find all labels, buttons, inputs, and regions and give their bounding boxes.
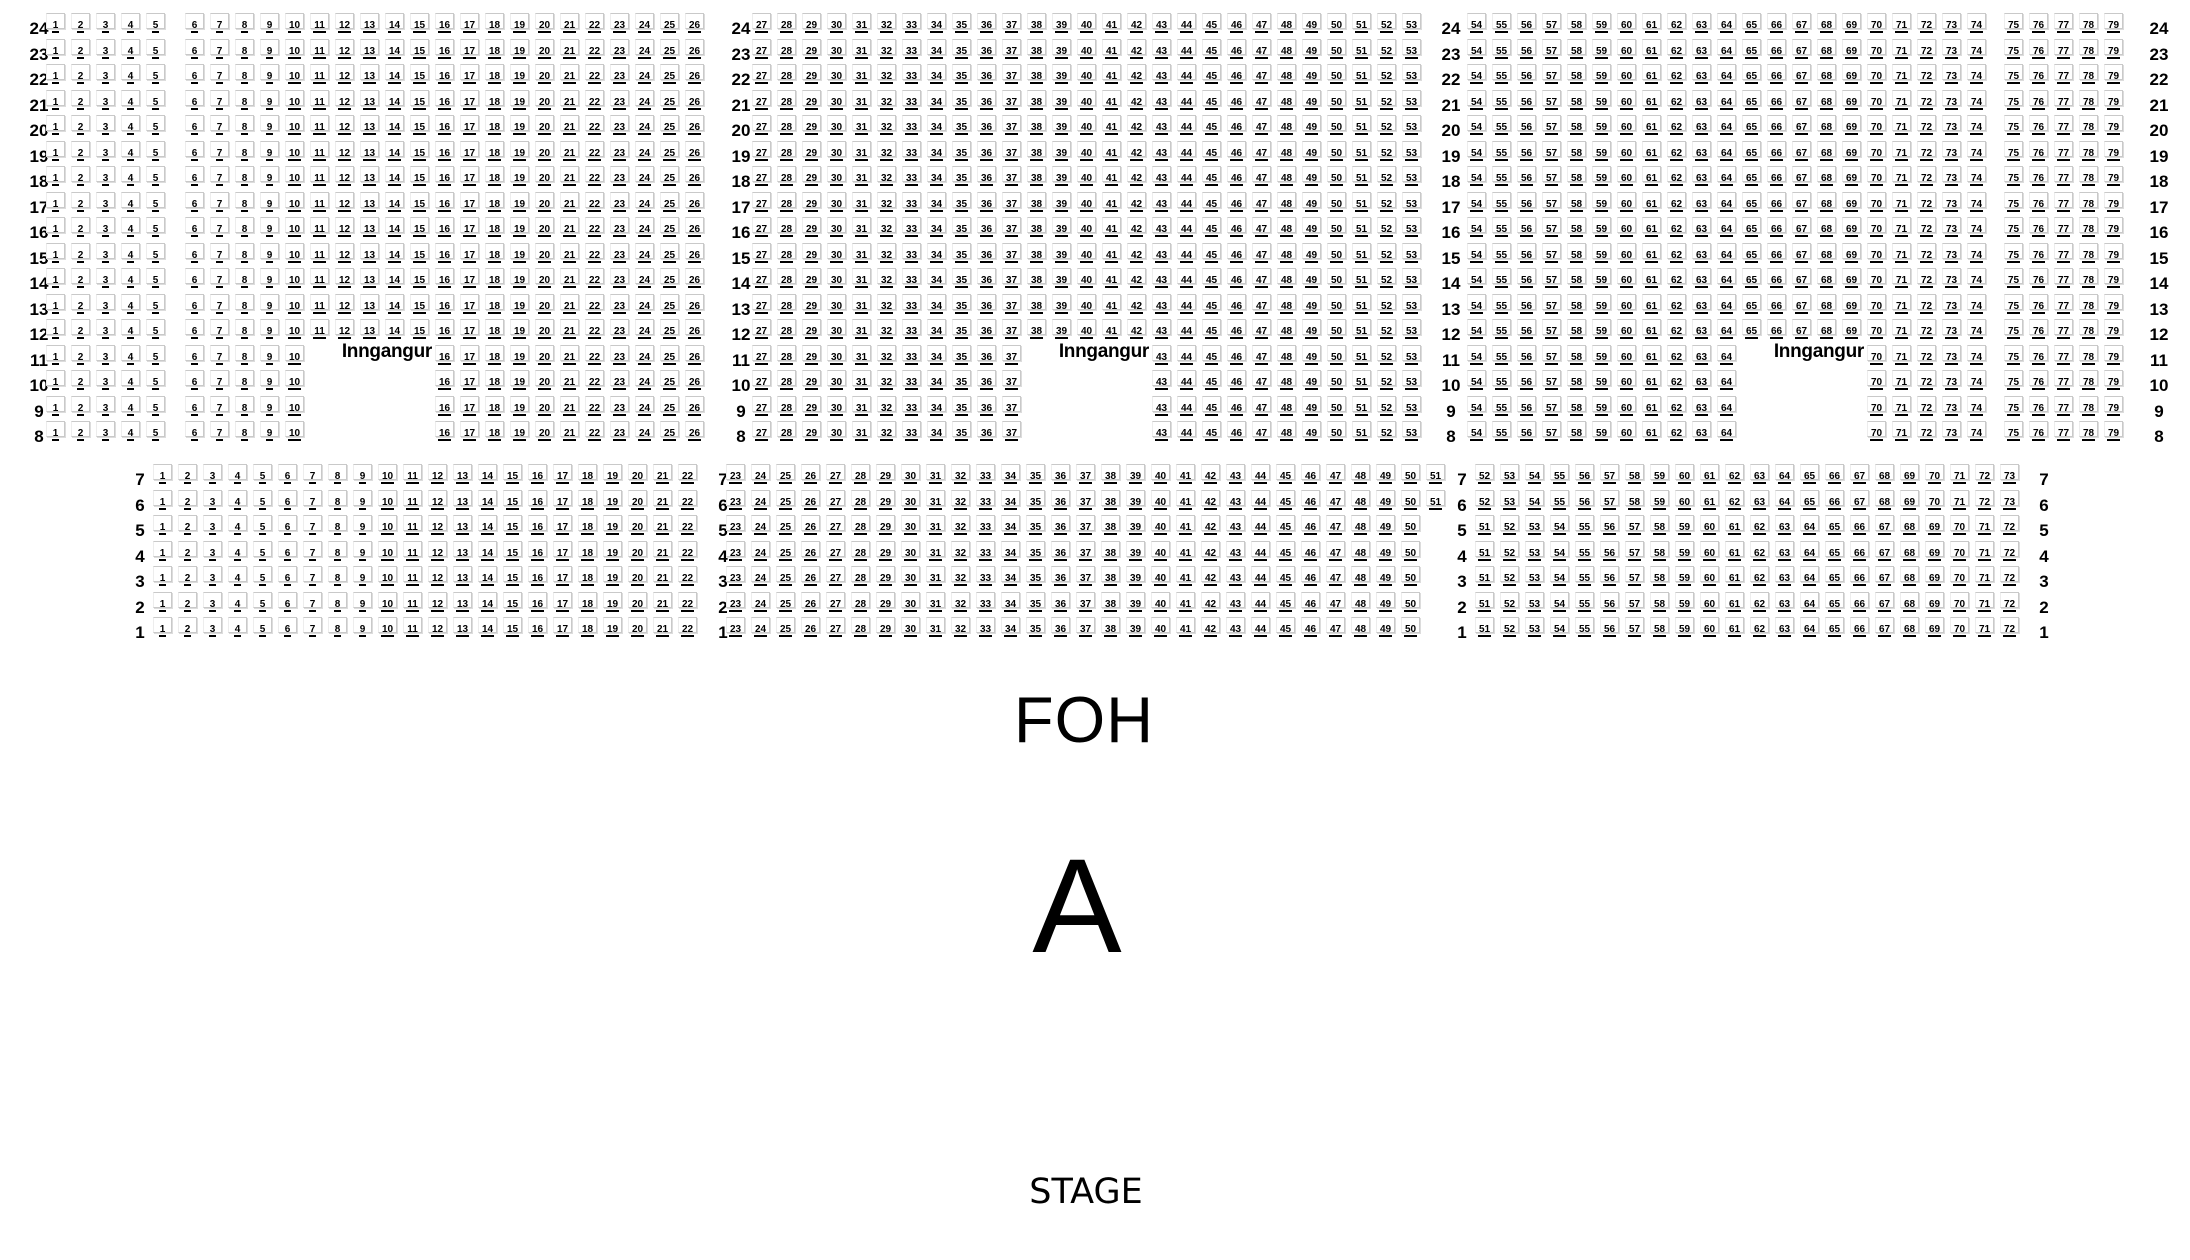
seat-r19-s74[interactable]: 74 [1967,141,1986,157]
seat-r15-s3[interactable]: 3 [96,243,115,259]
seat-r8-s25[interactable]: 25 [660,421,679,437]
seat-r24-s15[interactable]: 15 [410,13,429,29]
seat-r19-s56[interactable]: 56 [1517,141,1536,157]
seat-r24-s47[interactable]: 47 [1252,13,1271,29]
seat-r6-s45[interactable]: 45 [1276,490,1295,506]
seat-r6-s44[interactable]: 44 [1251,490,1270,506]
seat-r24-s20[interactable]: 20 [535,13,554,29]
seat-r4-s69[interactable]: 69 [1925,541,1944,557]
seat-r13-s55[interactable]: 55 [1492,294,1511,310]
seat-r8-s32[interactable]: 32 [877,421,896,437]
seat-r14-s57[interactable]: 57 [1542,268,1561,284]
seat-r24-s32[interactable]: 32 [877,13,896,29]
seat-r16-s4[interactable]: 4 [121,217,140,233]
seat-r2-s54[interactable]: 54 [1550,592,1569,608]
seat-r22-s53[interactable]: 53 [1402,64,1421,80]
seat-r9-s63[interactable]: 63 [1692,396,1711,412]
seat-r13-s70[interactable]: 70 [1867,294,1886,310]
seat-r23-s20[interactable]: 20 [535,39,554,55]
seat-r19-s52[interactable]: 52 [1377,141,1396,157]
seat-r21-s17[interactable]: 17 [460,90,479,106]
seat-r12-s9[interactable]: 9 [260,319,279,335]
seat-r20-s63[interactable]: 63 [1692,115,1711,131]
seat-r15-s45[interactable]: 45 [1202,243,1221,259]
seat-r17-s5[interactable]: 5 [146,192,165,208]
seat-r19-s70[interactable]: 70 [1867,141,1886,157]
seat-r3-s64[interactable]: 64 [1800,566,1819,582]
seat-r18-s66[interactable]: 66 [1767,166,1786,182]
seat-r19-s6[interactable]: 6 [185,141,204,157]
seat-r23-s19[interactable]: 19 [510,39,529,55]
seat-r2-s48[interactable]: 48 [1351,592,1370,608]
seat-r12-s56[interactable]: 56 [1517,319,1536,335]
seat-r1-s38[interactable]: 38 [1101,617,1120,633]
seat-r6-s7[interactable]: 7 [303,490,322,506]
seat-r24-s50[interactable]: 50 [1327,13,1346,29]
seat-r4-s40[interactable]: 40 [1151,541,1170,557]
seat-r24-s54[interactable]: 54 [1467,13,1486,29]
seat-r9-s48[interactable]: 48 [1277,396,1296,412]
seat-r2-s28[interactable]: 28 [851,592,870,608]
seat-r5-s64[interactable]: 64 [1800,515,1819,531]
seat-r24-s45[interactable]: 45 [1202,13,1221,29]
seat-r8-s10[interactable]: 10 [285,421,304,437]
seat-r3-s51[interactable]: 51 [1475,566,1494,582]
seat-r21-s6[interactable]: 6 [185,90,204,106]
seat-r14-s60[interactable]: 60 [1617,268,1636,284]
seat-r4-s27[interactable]: 27 [826,541,845,557]
seat-r8-s21[interactable]: 21 [560,421,579,437]
seat-r21-s49[interactable]: 49 [1302,90,1321,106]
seat-r5-s2[interactable]: 2 [178,515,197,531]
seat-r13-s56[interactable]: 56 [1517,294,1536,310]
seat-r22-s35[interactable]: 35 [952,64,971,80]
seat-r17-s44[interactable]: 44 [1177,192,1196,208]
seat-r8-s50[interactable]: 50 [1327,421,1346,437]
seat-r3-s36[interactable]: 36 [1051,566,1070,582]
seat-r15-s10[interactable]: 10 [285,243,304,259]
seat-r6-s71[interactable]: 71 [1950,490,1969,506]
seat-r5-s11[interactable]: 11 [403,515,422,531]
seat-r5-s28[interactable]: 28 [851,515,870,531]
seat-r24-s57[interactable]: 57 [1542,13,1561,29]
seat-r23-s2[interactable]: 2 [71,39,90,55]
seat-r18-s41[interactable]: 41 [1102,166,1121,182]
seat-r12-s4[interactable]: 4 [121,319,140,335]
seat-r20-s6[interactable]: 6 [185,115,204,131]
seat-r1-s7[interactable]: 7 [303,617,322,633]
seat-r5-s53[interactable]: 53 [1525,515,1544,531]
seat-r4-s36[interactable]: 36 [1051,541,1070,557]
seat-r18-s4[interactable]: 4 [121,166,140,182]
seat-r5-s37[interactable]: 37 [1076,515,1095,531]
seat-r19-s5[interactable]: 5 [146,141,165,157]
seat-r5-s18[interactable]: 18 [578,515,597,531]
seat-r7-s49[interactable]: 49 [1376,464,1395,480]
seat-r16-s15[interactable]: 15 [410,217,429,233]
seat-r21-s30[interactable]: 30 [827,90,846,106]
seat-r12-s23[interactable]: 23 [610,319,629,335]
seat-r16-s39[interactable]: 39 [1052,217,1071,233]
seat-r7-s14[interactable]: 14 [478,464,497,480]
seat-r18-s43[interactable]: 43 [1152,166,1171,182]
seat-r7-s57[interactable]: 57 [1600,464,1619,480]
seat-r6-s28[interactable]: 28 [851,490,870,506]
seat-r1-s67[interactable]: 67 [1875,617,1894,633]
seat-r5-s45[interactable]: 45 [1276,515,1295,531]
seat-r18-s53[interactable]: 53 [1402,166,1421,182]
seat-r16-s17[interactable]: 17 [460,217,479,233]
seat-r3-s17[interactable]: 17 [553,566,572,582]
seat-r2-s56[interactable]: 56 [1600,592,1619,608]
seat-r23-s25[interactable]: 25 [660,39,679,55]
seat-r14-s20[interactable]: 20 [535,268,554,284]
seat-r8-s2[interactable]: 2 [71,421,90,437]
seat-r11-s28[interactable]: 28 [777,345,796,361]
seat-r8-s75[interactable]: 75 [2004,421,2023,437]
seat-r13-s32[interactable]: 32 [877,294,896,310]
seat-r2-s66[interactable]: 66 [1850,592,1869,608]
seat-r20-s57[interactable]: 57 [1542,115,1561,131]
seat-r19-s64[interactable]: 64 [1717,141,1736,157]
seat-r7-s29[interactable]: 29 [876,464,895,480]
seat-r6-s48[interactable]: 48 [1351,490,1370,506]
seat-r6-s69[interactable]: 69 [1900,490,1919,506]
seat-r4-s10[interactable]: 10 [378,541,397,557]
seat-r14-s4[interactable]: 4 [121,268,140,284]
seat-r16-s62[interactable]: 62 [1667,217,1686,233]
seat-r1-s40[interactable]: 40 [1151,617,1170,633]
seat-r6-s23[interactable]: 23 [726,490,745,506]
seat-r11-s24[interactable]: 24 [635,345,654,361]
seat-r18-s28[interactable]: 28 [777,166,796,182]
seat-r16-s8[interactable]: 8 [235,217,254,233]
seat-r20-s41[interactable]: 41 [1102,115,1121,131]
seat-r5-s23[interactable]: 23 [726,515,745,531]
seat-r13-s8[interactable]: 8 [235,294,254,310]
seat-r13-s62[interactable]: 62 [1667,294,1686,310]
seat-r1-s60[interactable]: 60 [1700,617,1719,633]
seat-r16-s37[interactable]: 37 [1002,217,1021,233]
seat-r20-s24[interactable]: 24 [635,115,654,131]
seat-r15-s12[interactable]: 12 [335,243,354,259]
seat-r11-s62[interactable]: 62 [1667,345,1686,361]
seat-r17-s23[interactable]: 23 [610,192,629,208]
seat-r7-s25[interactable]: 25 [776,464,795,480]
seat-r2-s22[interactable]: 22 [678,592,697,608]
seat-r2-s37[interactable]: 37 [1076,592,1095,608]
seat-r2-s8[interactable]: 8 [328,592,347,608]
seat-r24-s51[interactable]: 51 [1352,13,1371,29]
seat-r23-s49[interactable]: 49 [1302,39,1321,55]
seat-r20-s15[interactable]: 15 [410,115,429,131]
seat-r7-s67[interactable]: 67 [1850,464,1869,480]
seat-r8-s24[interactable]: 24 [635,421,654,437]
seat-r14-s35[interactable]: 35 [952,268,971,284]
seat-r21-s54[interactable]: 54 [1467,90,1486,106]
seat-r13-s16[interactable]: 16 [435,294,454,310]
seat-r22-s37[interactable]: 37 [1002,64,1021,80]
seat-r16-s33[interactable]: 33 [902,217,921,233]
seat-r15-s65[interactable]: 65 [1742,243,1761,259]
seat-r11-s76[interactable]: 76 [2029,345,2048,361]
seat-r6-s34[interactable]: 34 [1001,490,1020,506]
seat-r14-s69[interactable]: 69 [1842,268,1861,284]
seat-r21-s72[interactable]: 72 [1917,90,1936,106]
seat-r20-s33[interactable]: 33 [902,115,921,131]
seat-r1-s10[interactable]: 10 [378,617,397,633]
seat-r2-s46[interactable]: 46 [1301,592,1320,608]
seat-r12-s21[interactable]: 21 [560,319,579,335]
seat-r20-s75[interactable]: 75 [2004,115,2023,131]
seat-r22-s42[interactable]: 42 [1127,64,1146,80]
seat-r14-s63[interactable]: 63 [1692,268,1711,284]
seat-r21-s29[interactable]: 29 [802,90,821,106]
seat-r23-s48[interactable]: 48 [1277,39,1296,55]
seat-r15-s61[interactable]: 61 [1642,243,1661,259]
seat-r16-s16[interactable]: 16 [435,217,454,233]
seat-r22-s19[interactable]: 19 [510,64,529,80]
seat-r22-s12[interactable]: 12 [335,64,354,80]
seat-r6-s16[interactable]: 16 [528,490,547,506]
seat-r13-s64[interactable]: 64 [1717,294,1736,310]
seat-r6-s64[interactable]: 64 [1775,490,1794,506]
seat-r16-s30[interactable]: 30 [827,217,846,233]
seat-r6-s29[interactable]: 29 [876,490,895,506]
seat-r7-s63[interactable]: 63 [1750,464,1769,480]
seat-r11-s50[interactable]: 50 [1327,345,1346,361]
seat-r11-s55[interactable]: 55 [1492,345,1511,361]
seat-r18-s17[interactable]: 17 [460,166,479,182]
seat-r19-s77[interactable]: 77 [2054,141,2073,157]
seat-r1-s1[interactable]: 1 [153,617,172,633]
seat-r1-s39[interactable]: 39 [1126,617,1145,633]
seat-r13-s11[interactable]: 11 [310,294,329,310]
seat-r12-s42[interactable]: 42 [1127,319,1146,335]
seat-r15-s60[interactable]: 60 [1617,243,1636,259]
seat-r3-s62[interactable]: 62 [1750,566,1769,582]
seat-r15-s47[interactable]: 47 [1252,243,1271,259]
seat-r11-s45[interactable]: 45 [1202,345,1221,361]
seat-r24-s17[interactable]: 17 [460,13,479,29]
seat-r5-s55[interactable]: 55 [1575,515,1594,531]
seat-r9-s56[interactable]: 56 [1517,396,1536,412]
seat-r15-s69[interactable]: 69 [1842,243,1861,259]
seat-r10-s55[interactable]: 55 [1492,370,1511,386]
seat-r14-s21[interactable]: 21 [560,268,579,284]
seat-r5-s34[interactable]: 34 [1001,515,1020,531]
seat-r5-s27[interactable]: 27 [826,515,845,531]
seat-r15-s46[interactable]: 46 [1227,243,1246,259]
seat-r18-s33[interactable]: 33 [902,166,921,182]
seat-r17-s32[interactable]: 32 [877,192,896,208]
seat-r16-s41[interactable]: 41 [1102,217,1121,233]
seat-r21-s2[interactable]: 2 [71,90,90,106]
seat-r3-s53[interactable]: 53 [1525,566,1544,582]
seat-r8-s18[interactable]: 18 [485,421,504,437]
seat-r3-s52[interactable]: 52 [1500,566,1519,582]
seat-r15-s78[interactable]: 78 [2079,243,2098,259]
seat-r19-s46[interactable]: 46 [1227,141,1246,157]
seat-r3-s11[interactable]: 11 [403,566,422,582]
seat-r21-s36[interactable]: 36 [977,90,996,106]
seat-r23-s4[interactable]: 4 [121,39,140,55]
seat-r5-s16[interactable]: 16 [528,515,547,531]
seat-r1-s25[interactable]: 25 [776,617,795,633]
seat-r14-s17[interactable]: 17 [460,268,479,284]
seat-r3-s59[interactable]: 59 [1675,566,1694,582]
seat-r21-s13[interactable]: 13 [360,90,379,106]
seat-r4-s14[interactable]: 14 [478,541,497,557]
seat-r4-s58[interactable]: 58 [1650,541,1669,557]
seat-r15-s67[interactable]: 67 [1792,243,1811,259]
seat-r1-s48[interactable]: 48 [1351,617,1370,633]
seat-r19-s54[interactable]: 54 [1467,141,1486,157]
seat-r7-s70[interactable]: 70 [1925,464,1944,480]
seat-r20-s32[interactable]: 32 [877,115,896,131]
seat-r8-s43[interactable]: 43 [1152,421,1171,437]
seat-r24-s14[interactable]: 14 [385,13,404,29]
seat-r4-s60[interactable]: 60 [1700,541,1719,557]
seat-r1-s68[interactable]: 68 [1900,617,1919,633]
seat-r2-s10[interactable]: 10 [378,592,397,608]
seat-r3-s15[interactable]: 15 [503,566,522,582]
seat-r20-s71[interactable]: 71 [1892,115,1911,131]
seat-r19-s61[interactable]: 61 [1642,141,1661,157]
seat-r11-s22[interactable]: 22 [585,345,604,361]
seat-r12-s15[interactable]: 15 [410,319,429,335]
seat-r12-s19[interactable]: 19 [510,319,529,335]
seat-r4-s50[interactable]: 50 [1401,541,1420,557]
seat-r9-s9[interactable]: 9 [260,396,279,412]
seat-r14-s25[interactable]: 25 [660,268,679,284]
seat-r8-s23[interactable]: 23 [610,421,629,437]
seat-r16-s12[interactable]: 12 [335,217,354,233]
seat-r1-s70[interactable]: 70 [1950,617,1969,633]
seat-r13-s34[interactable]: 34 [927,294,946,310]
seat-r14-s13[interactable]: 13 [360,268,379,284]
seat-r13-s40[interactable]: 40 [1077,294,1096,310]
seat-r12-s38[interactable]: 38 [1027,319,1046,335]
seat-r7-s11[interactable]: 11 [403,464,422,480]
seat-r4-s54[interactable]: 54 [1550,541,1569,557]
seat-r19-s79[interactable]: 79 [2104,141,2123,157]
seat-r2-s18[interactable]: 18 [578,592,597,608]
seat-r11-s43[interactable]: 43 [1152,345,1171,361]
seat-r1-s69[interactable]: 69 [1925,617,1944,633]
seat-r18-s44[interactable]: 44 [1177,166,1196,182]
seat-r13-s75[interactable]: 75 [2004,294,2023,310]
seat-r22-s51[interactable]: 51 [1352,64,1371,80]
seat-r16-s14[interactable]: 14 [385,217,404,233]
seat-r3-s35[interactable]: 35 [1026,566,1045,582]
seat-r8-s8[interactable]: 8 [235,421,254,437]
seat-r15-s58[interactable]: 58 [1567,243,1586,259]
seat-r12-s13[interactable]: 13 [360,319,379,335]
seat-r24-s69[interactable]: 69 [1842,13,1861,29]
seat-r10-s7[interactable]: 7 [210,370,229,386]
seat-r5-s21[interactable]: 21 [653,515,672,531]
seat-r24-s23[interactable]: 23 [610,13,629,29]
seat-r19-s47[interactable]: 47 [1252,141,1271,157]
seat-r6-s36[interactable]: 36 [1051,490,1070,506]
seat-r20-s39[interactable]: 39 [1052,115,1071,131]
seat-r19-s43[interactable]: 43 [1152,141,1171,157]
seat-r22-s56[interactable]: 56 [1517,64,1536,80]
seat-r21-s8[interactable]: 8 [235,90,254,106]
seat-r21-s19[interactable]: 19 [510,90,529,106]
seat-r16-s78[interactable]: 78 [2079,217,2098,233]
seat-r19-s67[interactable]: 67 [1792,141,1811,157]
seat-r14-s39[interactable]: 39 [1052,268,1071,284]
seat-r22-s32[interactable]: 32 [877,64,896,80]
seat-r5-s56[interactable]: 56 [1600,515,1619,531]
seat-r24-s21[interactable]: 21 [560,13,579,29]
seat-r9-s60[interactable]: 60 [1617,396,1636,412]
seat-r20-s60[interactable]: 60 [1617,115,1636,131]
seat-r16-s34[interactable]: 34 [927,217,946,233]
seat-r23-s79[interactable]: 79 [2104,39,2123,55]
seat-r18-s54[interactable]: 54 [1467,166,1486,182]
seat-r11-s34[interactable]: 34 [927,345,946,361]
seat-r15-s64[interactable]: 64 [1717,243,1736,259]
seat-r19-s32[interactable]: 32 [877,141,896,157]
seat-r1-s53[interactable]: 53 [1525,617,1544,633]
seat-r22-s17[interactable]: 17 [460,64,479,80]
seat-r10-s3[interactable]: 3 [96,370,115,386]
seat-r20-s8[interactable]: 8 [235,115,254,131]
seat-r5-s3[interactable]: 3 [203,515,222,531]
seat-r15-s50[interactable]: 50 [1327,243,1346,259]
seat-r7-s41[interactable]: 41 [1176,464,1195,480]
seat-r19-s44[interactable]: 44 [1177,141,1196,157]
seat-r5-s69[interactable]: 69 [1925,515,1944,531]
seat-r18-s14[interactable]: 14 [385,166,404,182]
seat-r17-s70[interactable]: 70 [1867,192,1886,208]
seat-r16-s22[interactable]: 22 [585,217,604,233]
seat-r19-s75[interactable]: 75 [2004,141,2023,157]
seat-r16-s32[interactable]: 32 [877,217,896,233]
seat-r1-s21[interactable]: 21 [653,617,672,633]
seat-r6-s3[interactable]: 3 [203,490,222,506]
seat-r18-s11[interactable]: 11 [310,166,329,182]
seat-r21-s44[interactable]: 44 [1177,90,1196,106]
seat-r16-s76[interactable]: 76 [2029,217,2048,233]
seat-r15-s33[interactable]: 33 [902,243,921,259]
seat-r6-s35[interactable]: 35 [1026,490,1045,506]
seat-r11-s25[interactable]: 25 [660,345,679,361]
seat-r19-s15[interactable]: 15 [410,141,429,157]
seat-r6-s25[interactable]: 25 [776,490,795,506]
seat-r12-s45[interactable]: 45 [1202,319,1221,335]
seat-r12-s48[interactable]: 48 [1277,319,1296,335]
seat-r14-s43[interactable]: 43 [1152,268,1171,284]
seat-r14-s36[interactable]: 36 [977,268,996,284]
seat-r8-s54[interactable]: 54 [1467,421,1486,437]
seat-r22-s16[interactable]: 16 [435,64,454,80]
seat-r19-s41[interactable]: 41 [1102,141,1121,157]
seat-r18-s31[interactable]: 31 [852,166,871,182]
seat-r24-s1[interactable]: 1 [46,13,65,29]
seat-r11-s44[interactable]: 44 [1177,345,1196,361]
seat-r17-s40[interactable]: 40 [1077,192,1096,208]
seat-r24-s5[interactable]: 5 [146,13,165,29]
seat-r13-s5[interactable]: 5 [146,294,165,310]
seat-r24-s29[interactable]: 29 [802,13,821,29]
seat-r3-s56[interactable]: 56 [1600,566,1619,582]
seat-r4-s45[interactable]: 45 [1276,541,1295,557]
seat-r13-s15[interactable]: 15 [410,294,429,310]
